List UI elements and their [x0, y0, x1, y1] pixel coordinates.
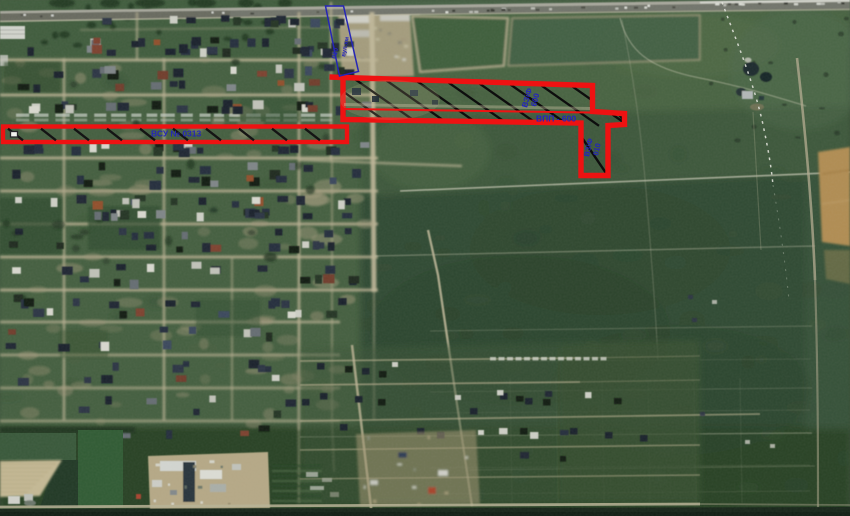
- svg-text:ВПП - 600: ВПП - 600: [536, 114, 576, 124]
- svg-text:ВСУ № 0313: ВСУ № 0313: [151, 129, 202, 139]
